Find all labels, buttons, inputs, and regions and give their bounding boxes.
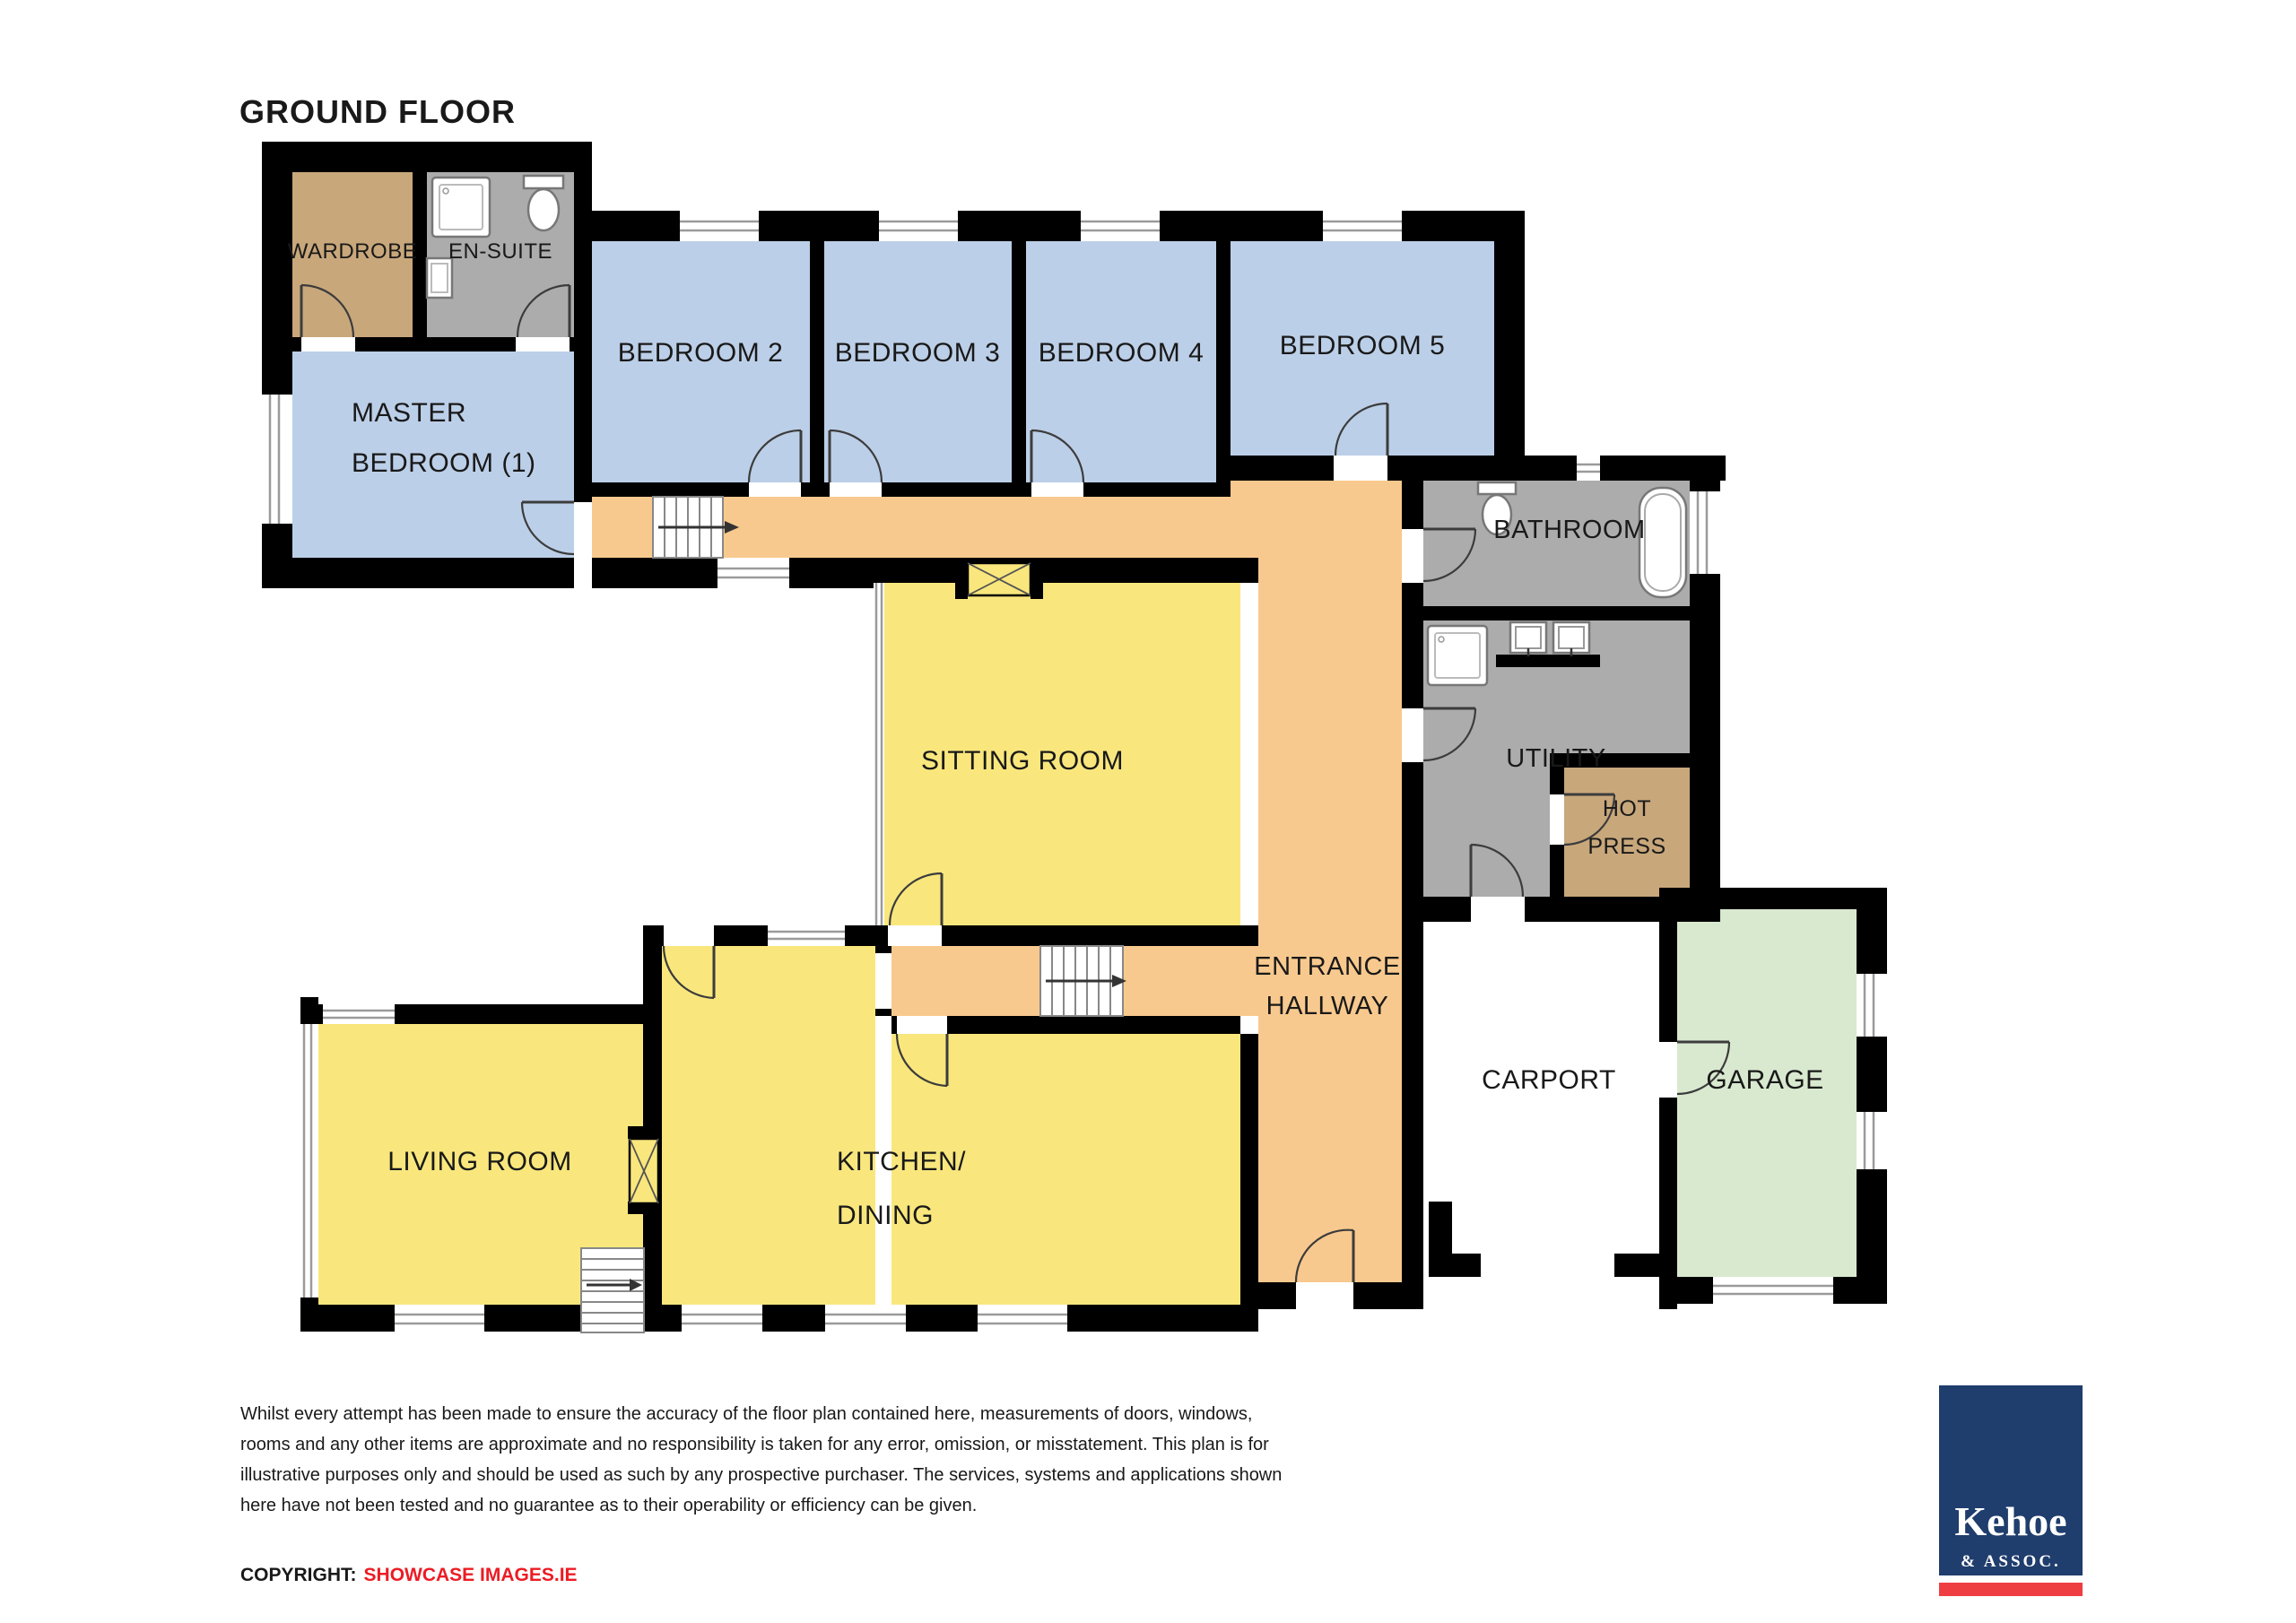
window-sitting-west-glazing [874, 583, 884, 925]
window-living-top [323, 1004, 395, 1024]
window-bedroom3-top [879, 211, 958, 241]
logo-panel [1939, 1385, 2083, 1575]
label-hot-press-line2: PRESS [1587, 834, 1665, 859]
page-title: GROUND FLOOR [239, 93, 516, 130]
label-kitchen-line1: KITCHEN/ [837, 1147, 966, 1176]
corridor-vestibule [1231, 481, 1402, 497]
copyright-line: COPYRIGHT:SHOWCASE IMAGES.IE [240, 1565, 578, 1585]
label-hot-press-line1: HOT [1603, 796, 1651, 821]
label-garage: GARAGE [1706, 1065, 1823, 1095]
bathroom-bathtub-icon [1639, 488, 1686, 597]
label-ensuite: EN-SUITE [448, 239, 552, 264]
window-bathroom-vent [1577, 456, 1600, 481]
room-hot-press [1564, 768, 1690, 897]
logo-name: Kehoe [1954, 1498, 2066, 1544]
disclaimer: Whilst every attempt has been made to en… [240, 1404, 1282, 1515]
living-fireplace-icon [630, 1139, 658, 1203]
label-bedroom4: BEDROOM 4 [1039, 338, 1205, 368]
ensuite-shower-icon [432, 178, 490, 237]
window-garage-east-1 [1857, 974, 1887, 1037]
disclaimer-line-1: Whilst every attempt has been made to en… [240, 1404, 1252, 1424]
label-bedroom5: BEDROOM 5 [1280, 331, 1446, 360]
disclaimer-line-2: rooms and any other items are approximat… [240, 1435, 1269, 1454]
garage-door-opening [1713, 1277, 1833, 1304]
floor-plan-canvas: GROUND FLOOR WARDROBE EN-SUITE MASTER BE… [0, 0, 2296, 1623]
label-sitting: SITTING ROOM [921, 746, 1124, 776]
label-utility: UTILITY [1506, 744, 1605, 773]
logo-suffix: & ASSOC. [1961, 1552, 2061, 1571]
label-master-line1: MASTER [352, 398, 466, 428]
label-wardrobe: WARDROBE [288, 239, 417, 264]
window-bedroom4-top [1081, 211, 1160, 241]
label-bedroom3: BEDROOM 3 [835, 338, 1001, 368]
label-entrance-line2: HALLWAY [1266, 992, 1389, 1020]
floor-plan-page: GROUND FLOOR WARDROBE EN-SUITE MASTER BE… [0, 0, 2296, 1623]
window-bathroom-east [1690, 491, 1720, 574]
label-bathroom: BATHROOM [1493, 516, 1645, 544]
label-master-line2: BEDROOM (1) [352, 448, 536, 478]
window-kitchen-bottom-1 [682, 1305, 762, 1332]
window-garage-east-2 [1857, 1112, 1887, 1169]
window-corridor-court [717, 558, 789, 588]
copyright-source-link[interactable]: SHOWCASE IMAGES.IE [364, 1565, 578, 1585]
window-master-left [262, 395, 292, 524]
utility-shower-icon [1428, 626, 1487, 685]
disclaimer-line-3: illustrative purposes only and should be… [240, 1465, 1282, 1485]
room-kitchen-west [662, 946, 875, 1305]
window-living-bay [299, 1024, 315, 1298]
window-bedroom2-top [680, 211, 759, 241]
label-living: LIVING ROOM [387, 1147, 572, 1176]
label-carport: CARPORT [1482, 1065, 1616, 1095]
entrance-hallway-lower [1258, 1016, 1402, 1282]
label-bedroom2: BEDROOM 2 [618, 338, 784, 368]
label-entrance-line1: ENTRANCE [1254, 952, 1401, 981]
sitting-fireplace-icon [968, 563, 1031, 595]
ensuite-basin-icon [427, 258, 452, 298]
staircase-hallway [1040, 946, 1126, 1016]
entrance-hallway-upper [1258, 558, 1402, 946]
agency-logo: Kehoe & ASSOC. [1939, 1385, 2083, 1596]
window-kitchen-court [768, 925, 845, 946]
copyright-label: COPYRIGHT: [240, 1565, 357, 1585]
disclaimer-line-4: here have not been tested and no guarant… [240, 1496, 977, 1515]
window-kitchen-bottom-3 [978, 1305, 1067, 1332]
logo-red-bar [1939, 1583, 2083, 1596]
window-living-bottom [395, 1305, 484, 1332]
window-bedroom5-top [1323, 211, 1402, 241]
window-kitchen-bottom-2 [825, 1305, 906, 1332]
staircase-living [581, 1248, 644, 1332]
label-kitchen-line2: DINING [837, 1201, 934, 1230]
